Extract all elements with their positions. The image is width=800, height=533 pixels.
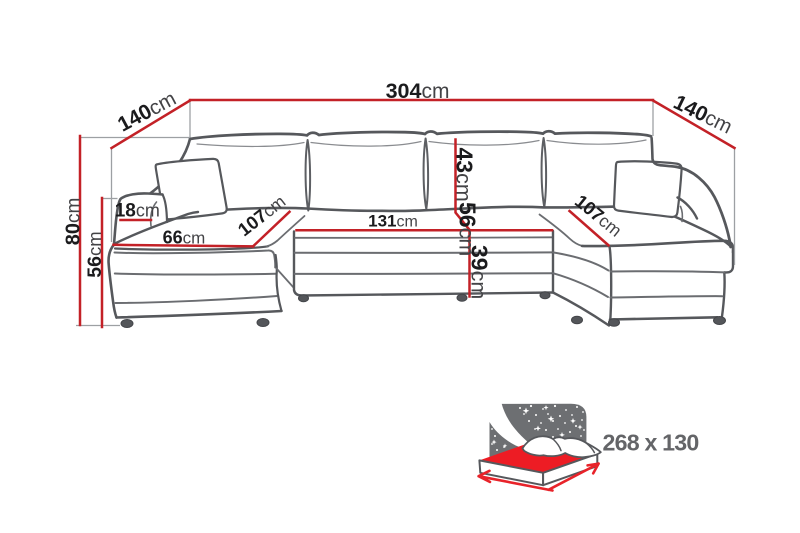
svg-text:39cm: 39cm (467, 245, 493, 299)
svg-text:80cm: 80cm (63, 198, 85, 246)
svg-text:56cm: 56cm (84, 231, 106, 277)
svg-text:268 x 130: 268 x 130 (603, 430, 699, 456)
svg-text:66cm: 66cm (163, 228, 206, 248)
svg-text:304cm: 304cm (386, 79, 450, 103)
svg-text:131cm: 131cm (368, 212, 418, 231)
svg-text:18cm: 18cm (115, 201, 160, 222)
svg-text:43cm: 43cm (452, 148, 478, 202)
